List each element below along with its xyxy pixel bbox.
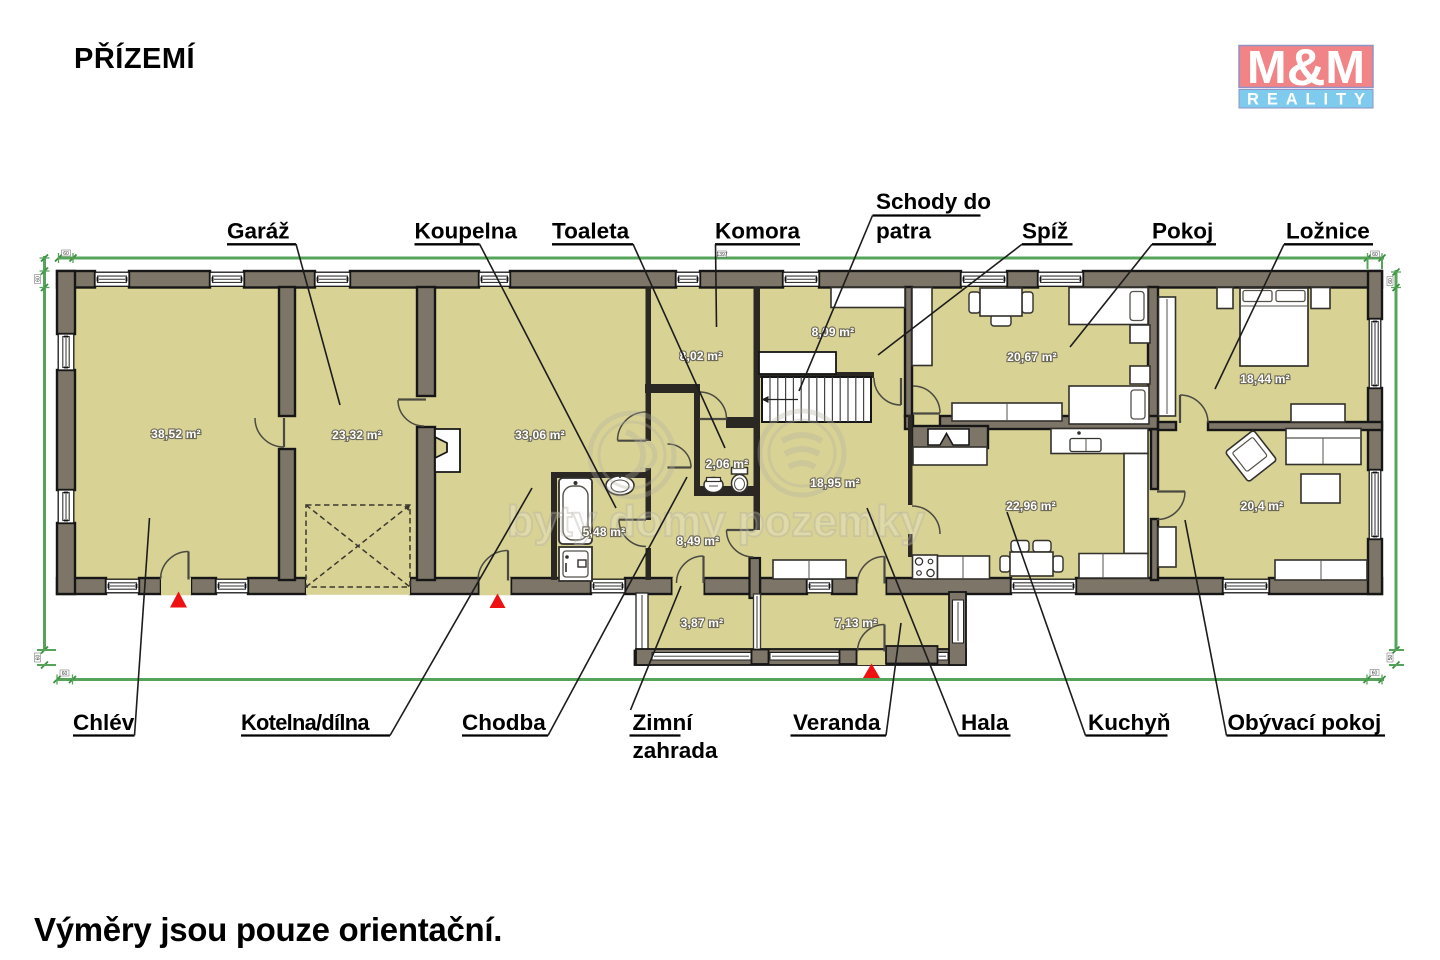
svg-text:PŘÍZEMÍ: PŘÍZEMÍ: [74, 41, 196, 75]
svg-text:8,09 m²: 8,09 m²: [812, 325, 855, 339]
svg-text:Spíž: Spíž: [1022, 219, 1068, 244]
svg-text:7,13 m²: 7,13 m²: [835, 616, 878, 630]
svg-text:Schody do: Schody do: [876, 189, 991, 214]
svg-text:60: 60: [1372, 670, 1378, 676]
svg-text:Veranda: Veranda: [793, 710, 881, 735]
svg-text:Toaleta: Toaleta: [552, 219, 630, 244]
svg-text:Koupelna: Koupelna: [415, 219, 518, 244]
svg-text:60: 60: [62, 671, 68, 677]
svg-text:60: 60: [1388, 278, 1394, 284]
svg-text:Kotelna/dílna: Kotelna/dílna: [241, 710, 370, 735]
svg-text:Ložnice: Ložnice: [1286, 219, 1370, 244]
svg-text:1397: 1397: [716, 252, 727, 258]
svg-text:18,95 m²: 18,95 m²: [810, 476, 860, 490]
svg-text:22,96 m²: 22,96 m²: [1006, 499, 1056, 513]
svg-text:zahrada: zahrada: [633, 738, 719, 763]
svg-text:Chodba: Chodba: [462, 710, 546, 735]
svg-text:8,49 m²: 8,49 m²: [677, 534, 720, 548]
svg-text:Kuchyň: Kuchyň: [1088, 710, 1171, 735]
svg-text:60: 60: [1372, 252, 1378, 258]
svg-text:Garáž: Garáž: [227, 219, 290, 244]
svg-text:20,67 m²: 20,67 m²: [1007, 350, 1057, 364]
svg-text:60: 60: [35, 276, 41, 282]
svg-text:60: 60: [63, 251, 69, 257]
svg-text:50: 50: [1388, 655, 1394, 661]
svg-text:patra: patra: [876, 219, 932, 244]
svg-text:3,87 m²: 3,87 m²: [681, 616, 724, 630]
svg-text:5,48 m²: 5,48 m²: [583, 525, 626, 539]
svg-text:20,4 m²: 20,4 m²: [1241, 499, 1284, 513]
svg-text:Komora: Komora: [715, 219, 800, 244]
svg-text:2,06 m²: 2,06 m²: [706, 457, 749, 471]
svg-text:60: 60: [35, 655, 41, 661]
svg-text:Pokoj: Pokoj: [1152, 219, 1213, 244]
svg-text:38,52 m²: 38,52 m²: [151, 427, 201, 441]
svg-text:33,06 m²: 33,06 m²: [515, 428, 565, 442]
svg-text:18,44 m²: 18,44 m²: [1240, 372, 1290, 386]
svg-text:Chlév: Chlév: [73, 710, 135, 735]
svg-text:Obývací pokoj: Obývací pokoj: [1228, 710, 1382, 735]
svg-text:Zimní: Zimní: [633, 710, 694, 735]
svg-text:Hala: Hala: [961, 710, 1009, 735]
svg-text:M&M: M&M: [1247, 39, 1365, 97]
svg-text:Výměry jsou pouze orientační.: Výměry jsou pouze orientační.: [34, 911, 502, 948]
svg-text:23,32 m²: 23,32 m²: [332, 428, 382, 442]
